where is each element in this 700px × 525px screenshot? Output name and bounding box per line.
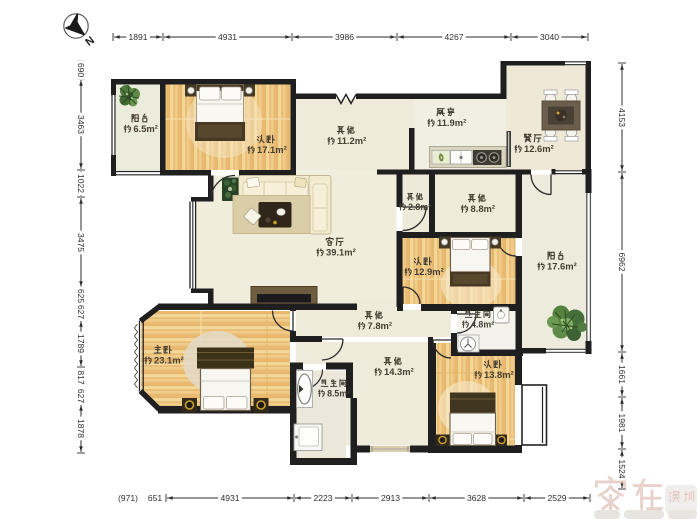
svg-text:8.8m²: 8.8m² [471,203,496,214]
svg-text:2913: 2913 [381,493,400,503]
svg-text:817: 817 [76,370,86,385]
svg-text:11.9m²: 11.9m² [437,117,466,128]
svg-text:651: 651 [148,493,163,503]
svg-text:6962: 6962 [617,252,627,271]
svg-text:3628: 3628 [467,493,486,503]
svg-text:12.6m²: 12.6m² [524,143,554,154]
svg-text:8.5m²: 8.5m² [327,388,350,398]
svg-text:1878: 1878 [76,419,86,438]
svg-text:39.1m²: 39.1m² [326,247,356,258]
svg-text:1022: 1022 [76,174,86,193]
svg-text:12.9m²: 12.9m² [414,266,444,277]
svg-text:4931: 4931 [220,493,239,503]
svg-text:625: 625 [76,289,86,304]
svg-text:4.8m²: 4.8m² [471,319,494,329]
svg-text:17.6m²: 17.6m² [547,261,577,272]
svg-text:2529: 2529 [547,493,566,503]
svg-text:3475: 3475 [76,233,86,252]
svg-text:3986: 3986 [335,32,354,42]
svg-text:1661: 1661 [617,365,627,384]
svg-text:(971): (971) [118,493,138,503]
svg-text:17.1m²: 17.1m² [257,144,287,155]
svg-text:627: 627 [76,389,86,404]
svg-text:13.8m²: 13.8m² [484,369,514,380]
svg-text:1524: 1524 [617,459,627,478]
svg-text:627: 627 [76,305,86,320]
svg-text:1981: 1981 [617,413,627,432]
svg-text:4153: 4153 [617,108,627,127]
svg-text:2.8m²: 2.8m² [408,202,431,212]
svg-text:3463: 3463 [76,115,86,134]
svg-text:4267: 4267 [444,32,463,42]
svg-text:23.1m²: 23.1m² [154,355,184,366]
svg-text:2223: 2223 [313,493,332,503]
svg-text:11.2m²: 11.2m² [337,135,366,146]
svg-text:1891: 1891 [128,32,147,42]
svg-text:3040: 3040 [540,32,559,42]
svg-text:4931: 4931 [218,32,237,42]
svg-text:6.5m²: 6.5m² [133,123,158,134]
svg-text:7.8m²: 7.8m² [368,320,393,331]
svg-text:1789: 1789 [76,334,86,353]
svg-text:14.3m²: 14.3m² [384,366,414,377]
svg-text:690: 690 [76,63,86,78]
